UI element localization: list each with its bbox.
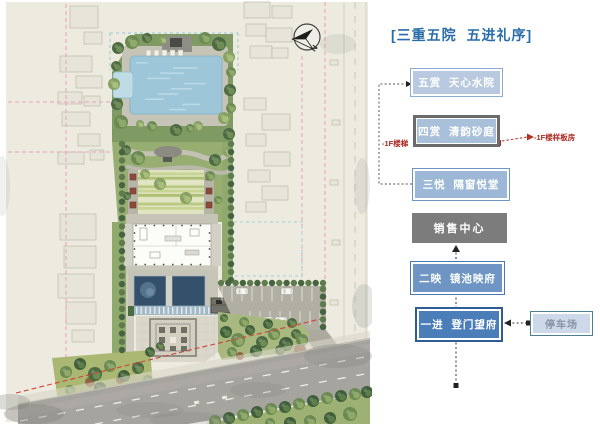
sales-center-building — [124, 214, 221, 274]
masterplan-page: N [三重五院 五进礼序] 五赏 天心水院 四赏 清韵砂庭 三悦 隔窗悦堂 销售… — [0, 0, 600, 424]
basement-stair-note: -1F楼梯 — [382, 138, 408, 149]
site-plan: N — [0, 0, 372, 424]
flow-box-four-view-sand-court: 四赏 清韵砂庭 — [413, 115, 500, 147]
flow-box-label: 一进 登门望府 — [419, 311, 499, 338]
flow-box-two-reflection-mirror-pool: 二映 镜池映府 — [410, 261, 505, 295]
flow-box-sales-center: 销售中心 — [412, 213, 507, 243]
page-title: [三重五院 五进礼序] — [391, 25, 532, 45]
flow-box-five-view-water-court: 五赏 天心水院 — [410, 68, 503, 97]
flow-connectors — [370, 0, 600, 424]
flow-box-label: 四赏 清韵砂庭 — [417, 119, 496, 143]
flow-box-label: 五赏 天心水院 — [413, 71, 500, 94]
basement-showroom-note: -1F楼样板房 — [534, 132, 575, 143]
flow-box-one-entry-gate: 一进 登门望府 — [415, 307, 503, 342]
reflecting-pools — [128, 270, 224, 316]
flow-box-parking-lot: 停车场 — [530, 311, 593, 336]
flow-box-label: 停车场 — [533, 314, 590, 333]
flow-box-label: 二映 镜池映府 — [413, 264, 502, 292]
flow-box-label: 销售中心 — [412, 213, 507, 243]
flow-box-three-joy-window-hall: 三悦 隔窗悦堂 — [412, 168, 510, 201]
flow-box-label: 三悦 隔窗悦堂 — [415, 171, 507, 198]
